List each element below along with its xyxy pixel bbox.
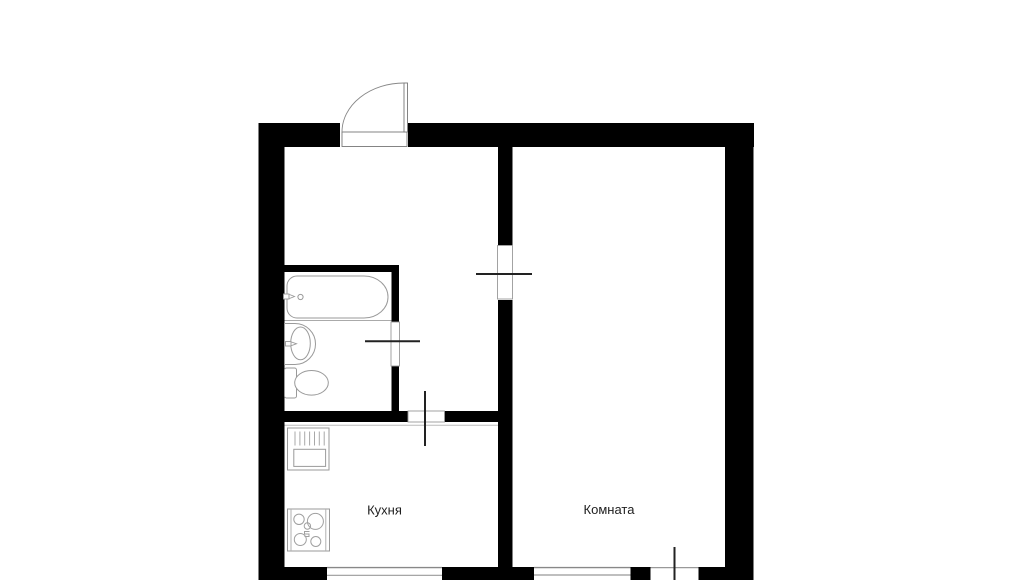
svg-text:Комната: Комната [584,502,636,517]
svg-text:Кухня: Кухня [367,503,402,518]
